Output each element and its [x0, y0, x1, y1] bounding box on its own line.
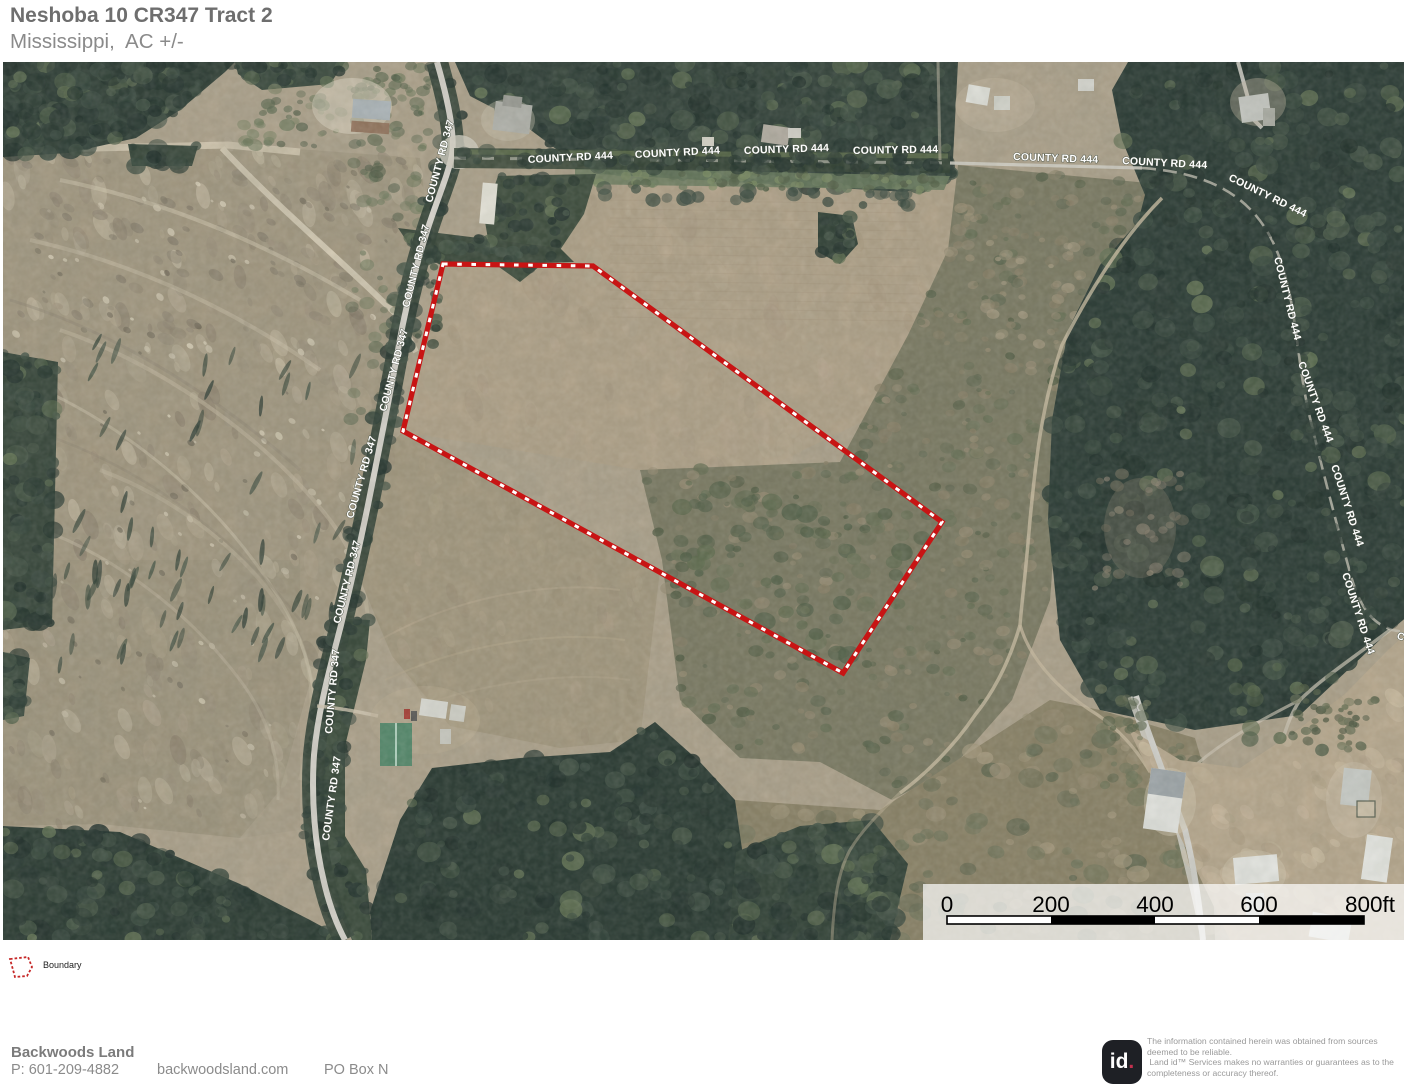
svg-text:0: 0 — [941, 892, 954, 917]
svg-text:200: 200 — [1032, 892, 1070, 917]
svg-text:600: 600 — [1240, 892, 1278, 917]
svg-text:800ft: 800ft — [1345, 892, 1396, 917]
svg-text:400: 400 — [1136, 892, 1174, 917]
svg-text:COUNTY RD 444: COUNTY RD 444 — [853, 144, 938, 157]
